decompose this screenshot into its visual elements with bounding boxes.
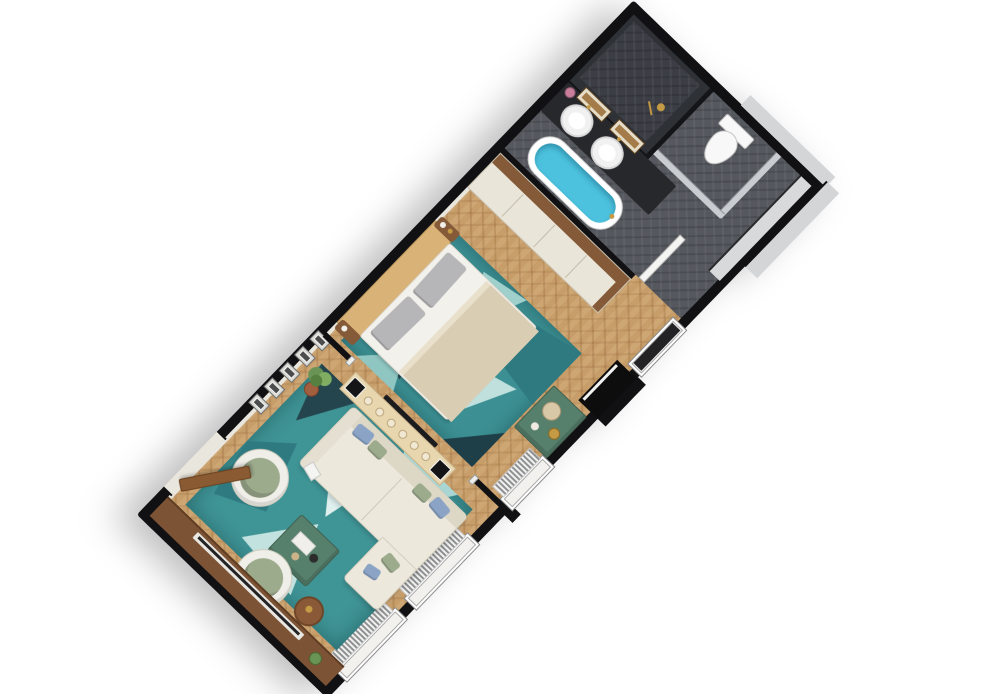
sofa-seat-seam	[361, 478, 402, 520]
floorplan-canvas	[0, 0, 1000, 694]
gold-vase	[546, 425, 563, 442]
chaise-pillow-sage	[380, 552, 401, 574]
nightstand-decor	[340, 324, 348, 332]
credenza-door-seam-2	[533, 224, 555, 247]
sideboard-plant	[306, 649, 324, 667]
candlestick-5	[408, 439, 421, 452]
chaise-pillow-blue	[362, 563, 382, 582]
nightstand-decor-gold	[447, 228, 454, 235]
ceramic-jug	[538, 398, 565, 425]
side-table-decor-gold	[304, 604, 314, 614]
credenza-door-seam-1	[502, 194, 524, 217]
candlestick-4	[396, 428, 409, 441]
wall-art	[254, 399, 265, 410]
candlestick-1	[362, 395, 375, 408]
credenza-door-seam-3	[565, 255, 587, 278]
wall-art	[284, 367, 295, 378]
candlestick-6	[419, 450, 432, 463]
small-dish	[529, 421, 540, 432]
wall-art	[300, 351, 311, 362]
suite-unit	[137, 0, 824, 694]
candlestick-3	[385, 417, 398, 430]
coffee-table-decor	[290, 551, 301, 562]
wall-art	[269, 383, 280, 394]
candlestick-2	[373, 406, 386, 419]
coffee-table-bowl	[307, 552, 320, 565]
black-square-lamp-left	[344, 376, 367, 399]
nightstand-decor	[439, 221, 447, 229]
